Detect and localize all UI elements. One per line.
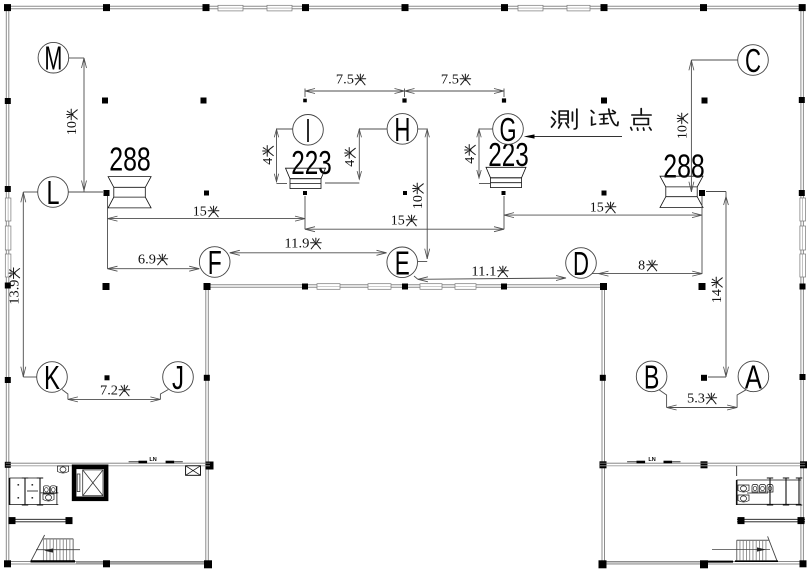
svg-text:K: K [44,360,60,397]
svg-text:A: A [745,359,762,396]
svg-text:7.2: 7.2 [100,383,118,398]
svg-text:LN: LN [648,457,655,463]
svg-text:288: 288 [663,148,705,185]
svg-text:4: 4 [342,160,357,167]
svg-text:5.3: 5.3 [687,391,705,406]
svg-text:15: 15 [590,200,604,215]
svg-text:288: 288 [109,141,151,178]
svg-text:13.9: 13.9 [6,279,21,304]
svg-text:6.9: 6.9 [138,252,156,267]
svg-text:J: J [172,360,184,397]
svg-text:15: 15 [391,213,405,228]
svg-text:H: H [394,112,410,149]
svg-text:D: D [573,246,589,283]
svg-text:7.5: 7.5 [441,72,459,87]
svg-text:F: F [208,245,222,282]
svg-text:15: 15 [193,204,207,219]
svg-text:M: M [44,41,62,78]
svg-text:7.5: 7.5 [336,72,354,87]
svg-text:14: 14 [709,289,724,303]
svg-text:10: 10 [675,125,690,139]
svg-text:G: G [500,112,517,149]
svg-text:11.9: 11.9 [284,236,309,251]
svg-text:10: 10 [410,195,425,209]
svg-text:8: 8 [638,258,645,273]
svg-text:B: B [644,359,660,396]
svg-text:11.1: 11.1 [471,264,496,279]
svg-text:I: I [306,113,311,150]
svg-text:4: 4 [462,157,477,164]
svg-text:E: E [395,245,410,282]
svg-text:LN: LN [149,457,156,463]
svg-text:L: L [47,175,60,212]
svg-text:4: 4 [260,158,275,165]
svg-text:10: 10 [64,121,79,135]
svg-text:C: C [745,43,761,80]
svg-text:223: 223 [291,144,332,181]
